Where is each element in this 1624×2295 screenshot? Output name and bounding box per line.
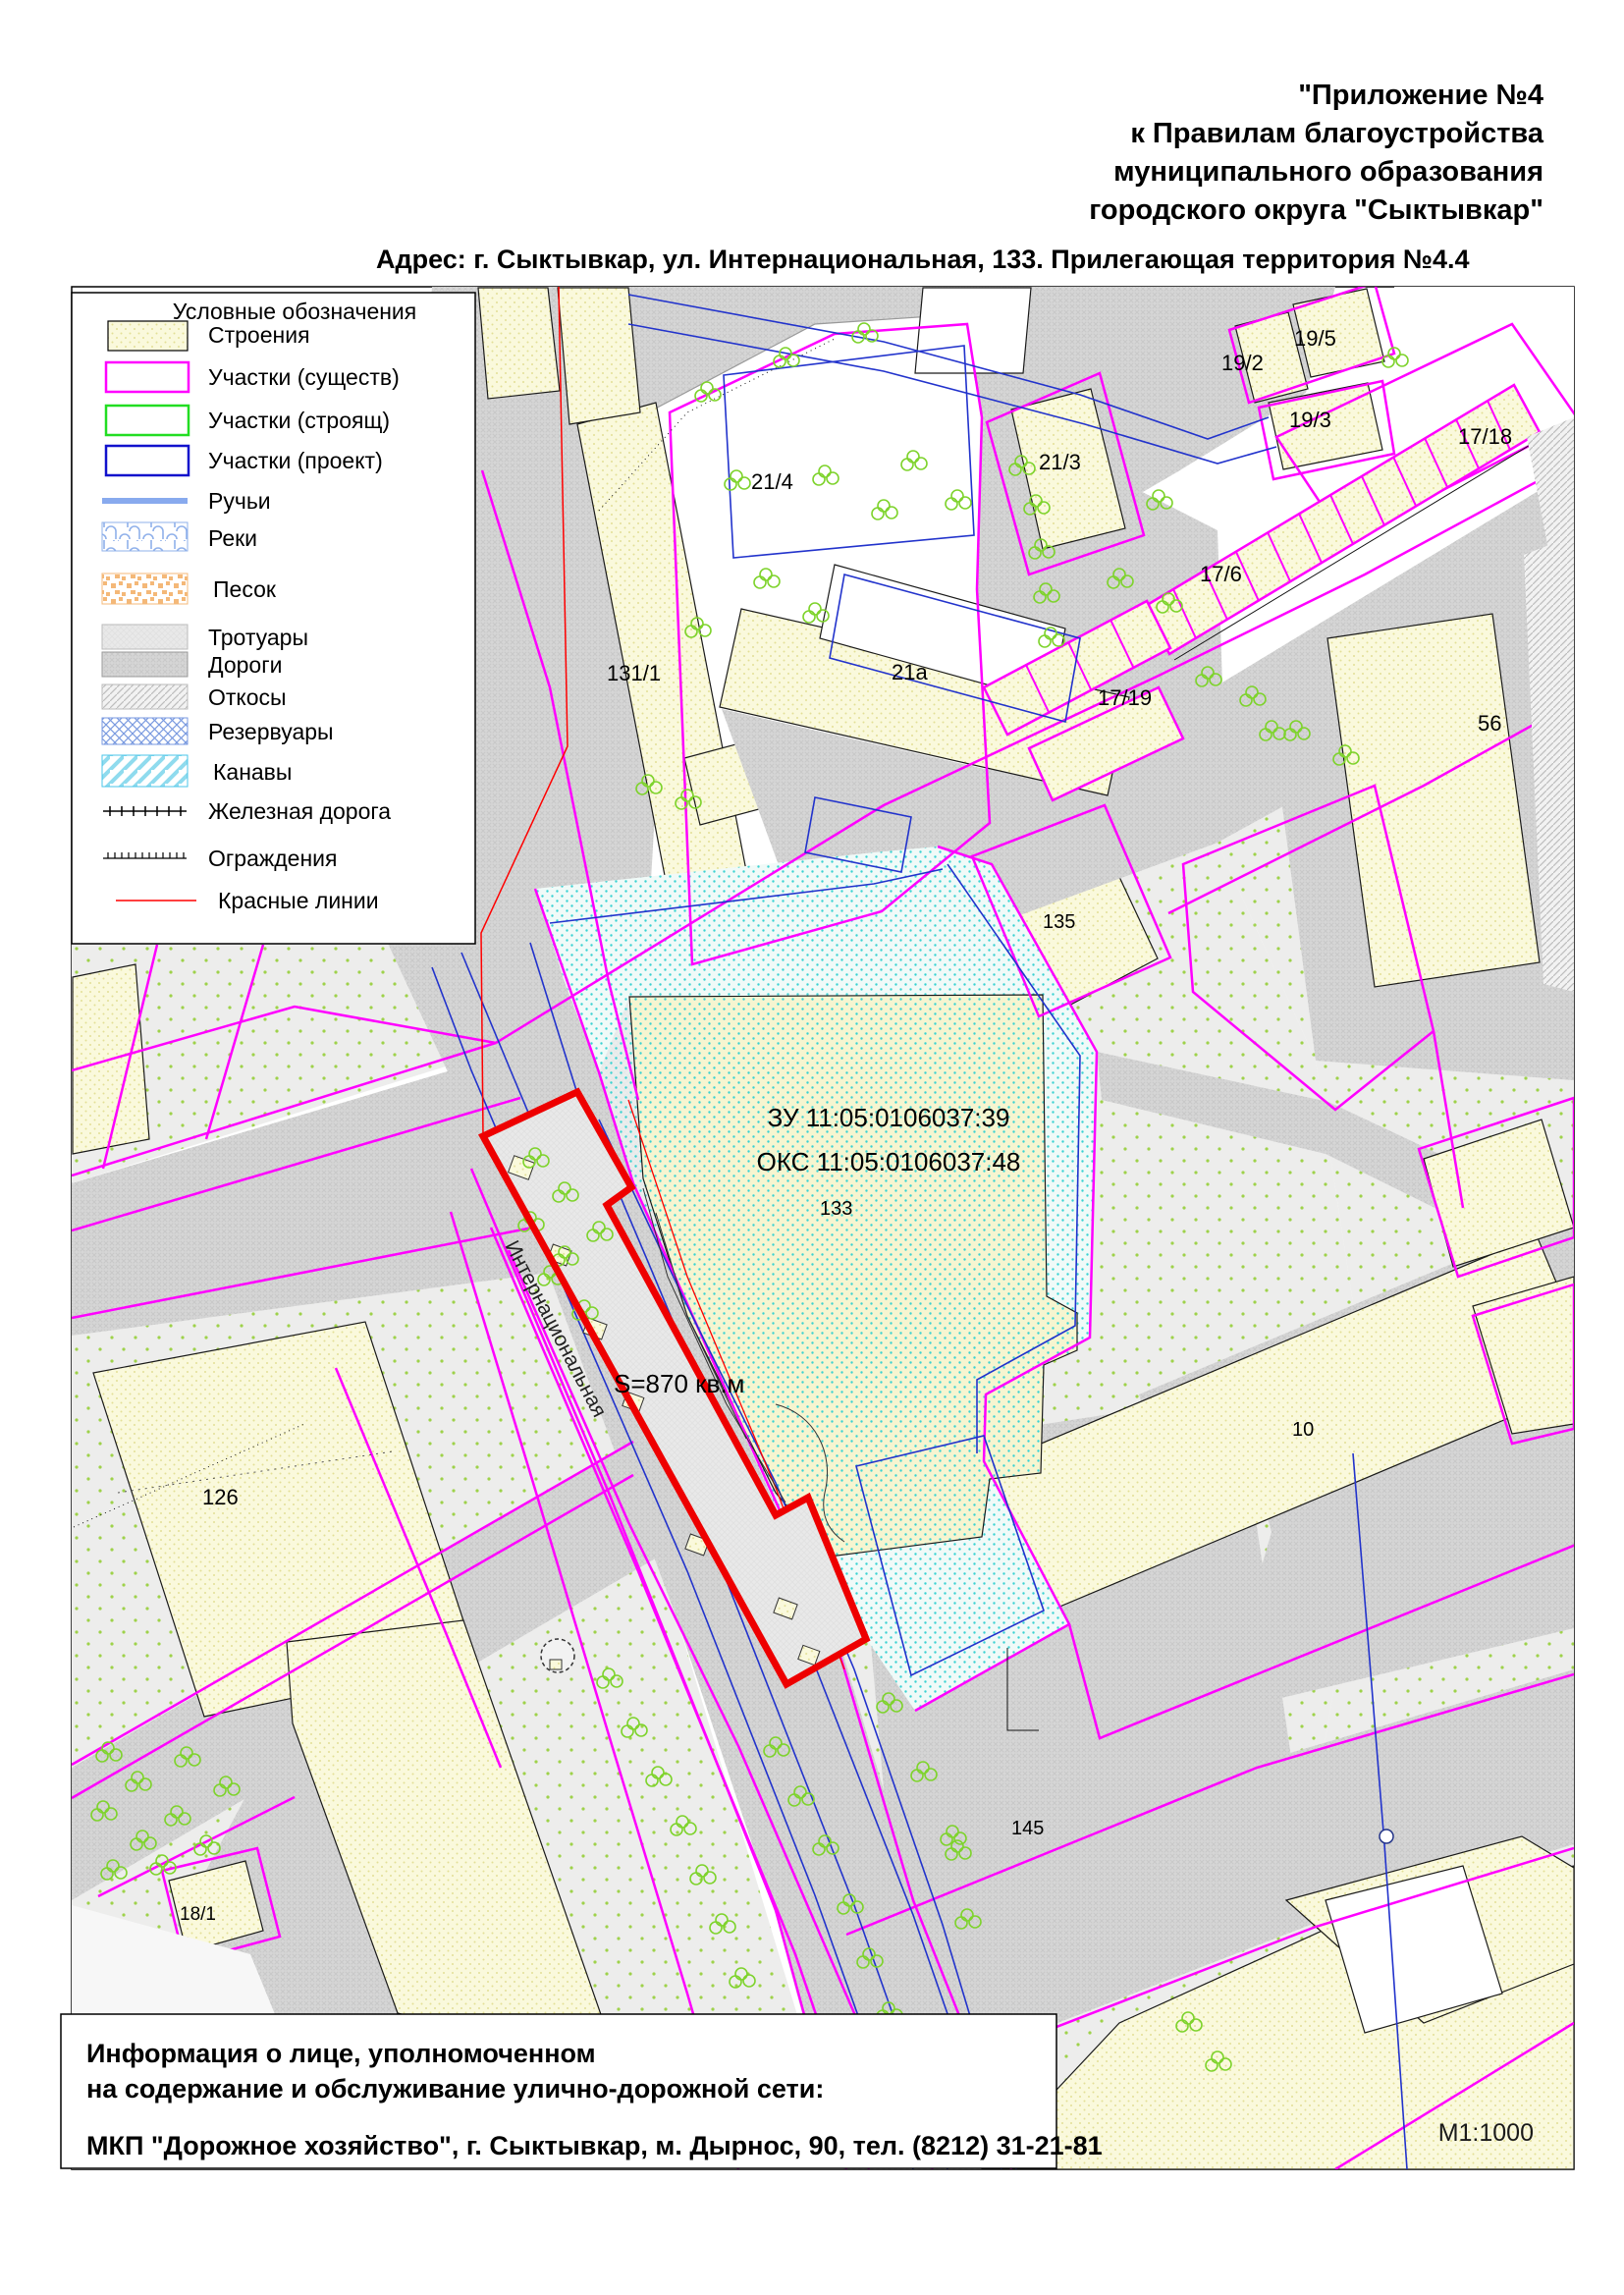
svg-text:Участки (существ): Участки (существ) xyxy=(208,364,400,390)
svg-text:17/18: 17/18 xyxy=(1458,424,1512,449)
svg-text:ЗУ 11:05:0106037:39: ЗУ 11:05:0106037:39 xyxy=(768,1103,1010,1132)
svg-text:Условные обозначения: Условные обозначения xyxy=(173,299,417,324)
svg-text:Участки (строящ): Участки (строящ) xyxy=(208,408,390,433)
svg-text:133: 133 xyxy=(820,1198,852,1220)
svg-text:муниципального образования: муниципального образования xyxy=(1113,156,1543,188)
svg-text:городского округа "Сыктывкар": городского округа "Сыктывкар" xyxy=(1089,194,1543,226)
svg-text:Участки (проект): Участки (проект) xyxy=(208,448,383,473)
svg-text:17/19: 17/19 xyxy=(1098,685,1152,710)
svg-text:21/4: 21/4 xyxy=(751,469,793,494)
svg-text:Адрес: г. Сыктывкар, ул. Интер: Адрес: г. Сыктывкар, ул. Интернациональн… xyxy=(376,245,1469,274)
svg-text:Откосы: Откосы xyxy=(208,684,287,710)
svg-text:ОКС 11:05:0106037:48: ОКС 11:05:0106037:48 xyxy=(757,1147,1021,1176)
svg-text:Строения: Строения xyxy=(208,322,310,348)
svg-text:Дороги: Дороги xyxy=(208,652,282,678)
svg-text:10: 10 xyxy=(1292,1419,1314,1441)
svg-text:Резервуары: Резервуары xyxy=(208,719,334,744)
svg-text:19/3: 19/3 xyxy=(1289,408,1331,432)
svg-text:56: 56 xyxy=(1478,711,1501,736)
svg-text:Железная дорога: Железная дорога xyxy=(208,798,391,824)
svg-text:Ограждения: Ограждения xyxy=(208,846,337,871)
svg-text:S=870 кв.м: S=870 кв.м xyxy=(614,1369,744,1398)
svg-text:Тротуары: Тротуары xyxy=(208,625,308,650)
svg-text:145: 145 xyxy=(1011,1818,1044,1839)
svg-text:МКП "Дорожное хозяйство", г. С: МКП "Дорожное хозяйство", г. Сыктывкар, … xyxy=(86,2131,1103,2160)
svg-text:М1:1000: М1:1000 xyxy=(1438,2119,1534,2147)
svg-text:на содержание и обслуживание у: на содержание и обслуживание улично-доро… xyxy=(86,2074,824,2104)
svg-text:Реки: Реки xyxy=(208,525,257,551)
svg-text:135: 135 xyxy=(1043,911,1075,933)
svg-text:21/3: 21/3 xyxy=(1039,450,1081,474)
svg-text:к Правилам благоустройства: к Правилам благоустройства xyxy=(1130,118,1544,149)
svg-text:21а: 21а xyxy=(892,660,928,684)
svg-text:126: 126 xyxy=(202,1485,239,1509)
svg-text:Ручьи: Ручьи xyxy=(208,488,271,514)
svg-text:19/2: 19/2 xyxy=(1221,351,1264,375)
svg-text:18/1: 18/1 xyxy=(180,1904,216,1925)
svg-text:Песок: Песок xyxy=(213,576,277,602)
svg-text:19/5: 19/5 xyxy=(1294,326,1336,351)
svg-text:Канавы: Канавы xyxy=(213,759,292,785)
svg-text:Информация о лице, уполномочен: Информация о лице, уполномоченном xyxy=(86,2039,596,2068)
svg-text:17/6: 17/6 xyxy=(1200,562,1242,586)
svg-text:Красные линии: Красные линии xyxy=(218,888,379,913)
svg-text:"Приложение №4: "Приложение №4 xyxy=(1298,80,1543,111)
svg-text:131/1: 131/1 xyxy=(607,661,661,685)
